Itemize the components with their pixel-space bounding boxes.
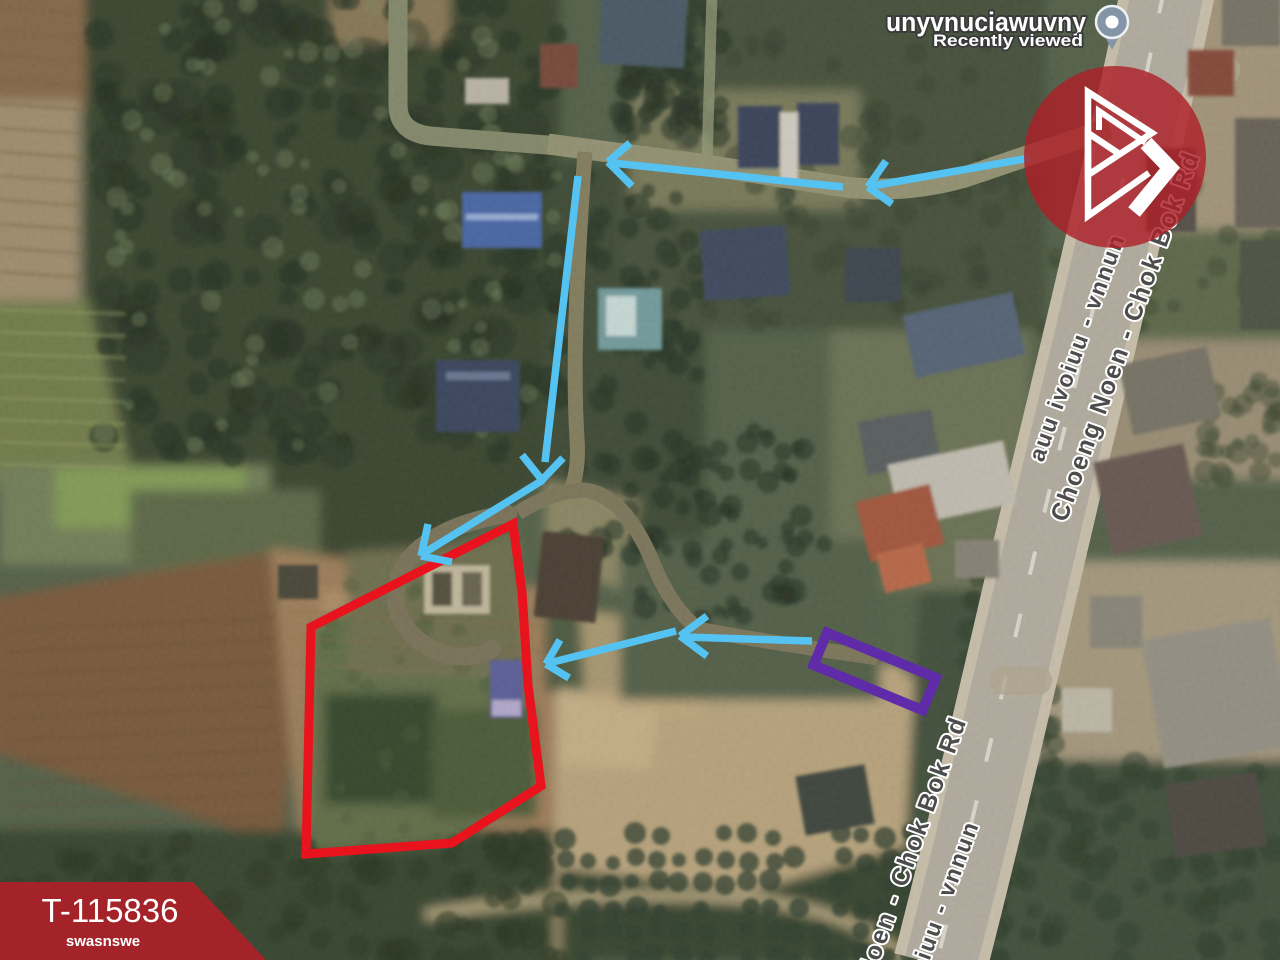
svg-text:swasnswe: swasnswe [66,933,140,950]
svg-text:Recently viewed: Recently viewed [933,31,1083,50]
svg-text:T-115836: T-115836 [42,892,179,929]
